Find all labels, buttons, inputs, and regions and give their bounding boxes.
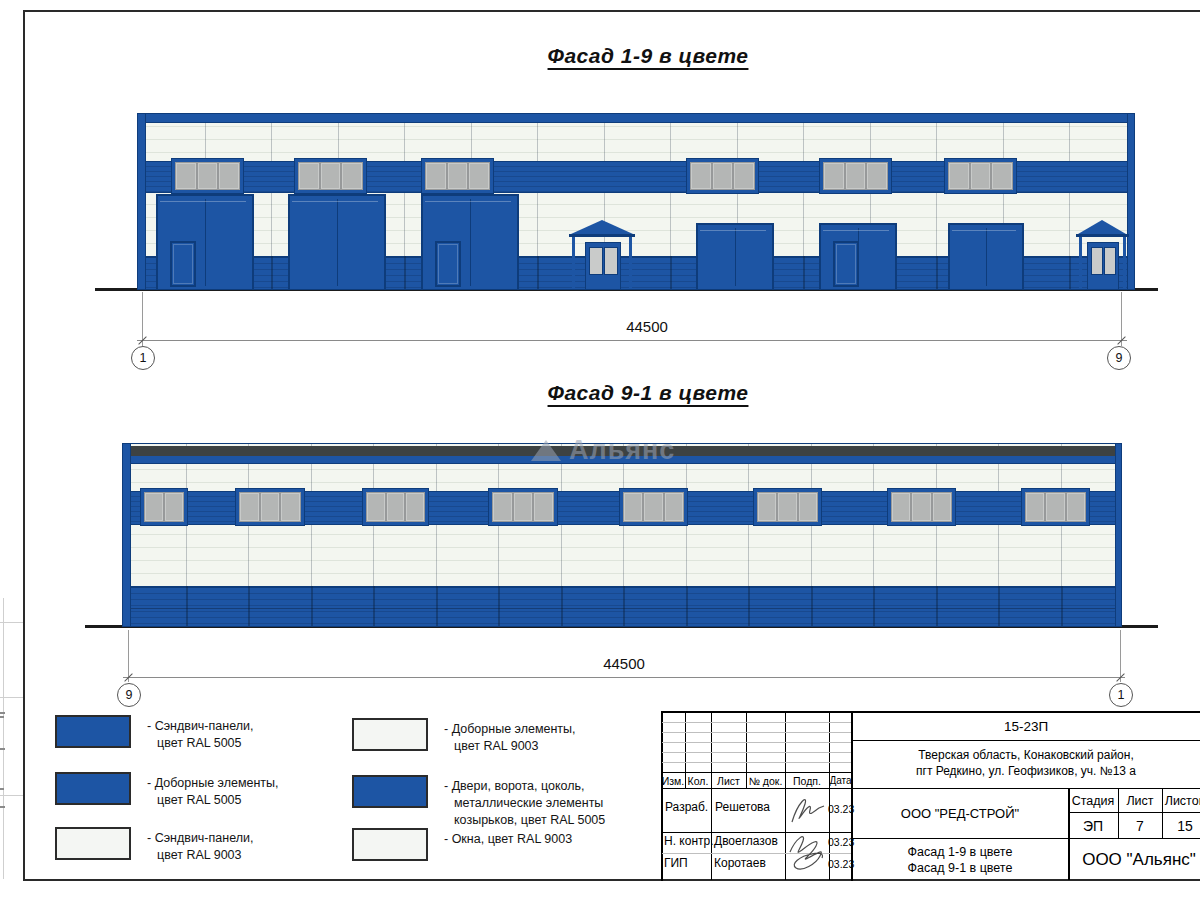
staff-name: Коротаев (714, 856, 766, 870)
base-joint (936, 586, 938, 627)
window (235, 488, 305, 526)
facade-9-1 (122, 443, 1122, 627)
base-joint (436, 586, 438, 627)
window-pane (342, 163, 362, 189)
base-joint (373, 586, 375, 627)
window-pane (1067, 493, 1085, 521)
titleblock-line (829, 712, 830, 880)
window-pane (665, 493, 683, 521)
window-pane (644, 493, 662, 521)
margin-stamp-mark (0, 806, 5, 808)
window-pane (912, 493, 930, 521)
entrance-door (1087, 242, 1119, 290)
canopy-post-right (1123, 237, 1126, 290)
gate (948, 223, 1024, 290)
wicket-door-edge (173, 244, 193, 284)
window-pane (176, 163, 196, 189)
staff-name: Двоеглазов (714, 834, 778, 848)
window-pane (240, 493, 259, 521)
legend-label: - Доборные элементы,цвет RAL 9003 (444, 718, 576, 755)
window-pane (448, 163, 468, 189)
corner-column-left (138, 114, 146, 290)
titleblock-thin-line (662, 762, 851, 763)
base-joint (248, 586, 250, 627)
legend-label: - Доборные элементы,цвет RAL 5005 (147, 772, 279, 809)
staff-role: Разраб. (665, 800, 708, 814)
window-pane (534, 493, 553, 521)
staff-date: 03.23 (828, 836, 853, 848)
window-pane (824, 163, 844, 189)
window-pane (406, 493, 424, 521)
dimension-line (137, 340, 1127, 341)
legend-label: - Сэндвич-панели,цвет RAL 9003 (147, 827, 253, 864)
window-pane (367, 493, 385, 521)
window-pane (799, 493, 817, 521)
gate-rail (823, 230, 889, 231)
window (140, 488, 188, 526)
watermark: Альянс (531, 435, 675, 466)
gate-split (735, 228, 736, 286)
canopy-icon (571, 220, 633, 234)
gate-split (337, 199, 338, 286)
gate-rail (292, 201, 378, 202)
extension-line (1120, 630, 1121, 682)
gate (421, 194, 519, 290)
gate-split (205, 199, 206, 286)
window-pane (469, 163, 489, 189)
titleblock-thin-line (662, 742, 851, 743)
col-kol: Кол. (685, 775, 711, 787)
legend-swatch-blue (352, 775, 428, 808)
plinth-joint (1069, 256, 1071, 290)
canopy-post-right (629, 237, 632, 290)
window-glass (823, 162, 888, 190)
legend-swatch-white (55, 827, 131, 860)
plinth-joint (404, 256, 406, 290)
plinth-joint (537, 256, 539, 290)
window (887, 488, 956, 526)
project-address-line2: пгт Редкино, ул. Геофизиков, уч. №13 а (852, 764, 1200, 778)
window-glass (239, 492, 301, 522)
window-glass (891, 492, 952, 522)
door-glass (1104, 247, 1116, 275)
window-pane (971, 163, 991, 189)
margin-stamp-line (0, 795, 23, 796)
dimension-value: 44500 (582, 318, 712, 335)
plinth-joint (670, 256, 672, 290)
drawing-sheet: Фасад 1-9 в цвете Фасад 9-1 в цвете Алья… (0, 0, 1200, 900)
plinth-joint (803, 256, 805, 290)
margin-stamp-line (0, 622, 23, 623)
window-glass (425, 162, 490, 190)
legend-label: - Окна, цвет RAL 9003 (444, 828, 572, 848)
canopy-post-left (1079, 237, 1082, 290)
window (294, 158, 367, 194)
titleblock-line (852, 838, 1200, 839)
window-glass (1025, 492, 1086, 522)
gate-rail (952, 230, 1016, 231)
window-pane (778, 493, 796, 521)
titleblock-line (662, 788, 851, 789)
window-pane (198, 163, 218, 189)
legend-swatch-blue (55, 715, 131, 748)
margin-stamp-mark (0, 748, 5, 750)
gate-split (986, 228, 987, 286)
col-doc: № док. (746, 775, 785, 787)
titleblock-thin-line (662, 752, 851, 753)
window (171, 158, 244, 194)
window (488, 488, 558, 526)
window (686, 158, 759, 194)
window-pane (387, 493, 405, 521)
base-joint (873, 586, 875, 627)
window (421, 158, 494, 194)
door-glass (589, 247, 603, 275)
col-podp: Подп. (785, 775, 829, 787)
contractor-name: ООО "РЕД-СТРОЙ" (852, 806, 1068, 821)
legend-column-1: - Сэндвич-панели,цвет RAL 5005- Доборные… (55, 705, 355, 880)
col-izm: Изм. (661, 775, 685, 787)
axis-bubble-9: 9 (1107, 346, 1131, 370)
window (819, 158, 892, 194)
window-pane (624, 493, 642, 521)
plinth-joint (271, 256, 273, 290)
staff-role: Н. контр. (664, 834, 714, 848)
watermark-text: Альянс (569, 435, 675, 466)
stage-value: ЭП (1068, 818, 1118, 834)
legend-swatch-white (352, 828, 428, 861)
base-joint (811, 586, 813, 627)
window-pane (321, 163, 341, 189)
window-pane (949, 163, 969, 189)
stage-label: Стадия (1068, 794, 1118, 808)
window-pane (426, 163, 446, 189)
margin-stamp-line (3, 598, 4, 879)
corner-column-right (1115, 444, 1122, 627)
door-glass (1091, 247, 1103, 275)
entrance-door (585, 242, 621, 290)
legend-label: - Сэндвич-панели,цвет RAL 5005 (147, 715, 253, 752)
legend-swatch-blue (55, 772, 131, 805)
canopy-post-left (572, 237, 575, 290)
sheets-value: 15 (1162, 818, 1200, 834)
watermark-logo-icon (531, 440, 561, 461)
legend-item: - Двери, ворота, цоколь,металлические эл… (352, 775, 662, 829)
col-list: Лист (711, 775, 746, 787)
legend-item: - Окна, цвет RAL 9003 (352, 828, 662, 861)
legend-item: - Сэндвич-панели,цвет RAL 9003 (55, 827, 355, 864)
titleblock-border-top (662, 711, 1200, 713)
legend-item: - Доборные элементы,цвет RAL 5005 (55, 772, 355, 809)
project-address-line1: Тверская область, Конаковский район, (852, 748, 1200, 762)
sheet-value: 7 (1118, 818, 1162, 834)
dimension-line (123, 677, 1125, 678)
staff-role: ГИП (664, 856, 688, 870)
corner-column-left (123, 444, 131, 627)
base-joint (1061, 586, 1063, 627)
titleblock-border-left (661, 711, 663, 881)
staff-name: Решетова (715, 800, 770, 814)
window-pane (867, 163, 887, 189)
corner-column-right (1127, 114, 1135, 290)
window-pane (892, 493, 910, 521)
window (362, 488, 429, 526)
window-pane (165, 493, 183, 521)
window (1021, 488, 1090, 526)
facade-top-title: Фасад 1-9 в цвете (348, 44, 948, 68)
margin-stamp-mark (0, 788, 4, 790)
window-pane (145, 493, 163, 521)
frame-top (23, 10, 1200, 12)
window-glass (298, 162, 363, 190)
window-pane (514, 493, 533, 521)
window-glass (690, 162, 755, 190)
window-pane (219, 163, 239, 189)
gate (696, 223, 774, 290)
canopy-bar (1076, 234, 1129, 237)
window-pane (846, 163, 866, 189)
gate-rail (425, 201, 511, 202)
facade-bottom-title: Фасад 9-1 в цвете (348, 381, 948, 405)
window-pane (691, 163, 711, 189)
wicket-door-edge (836, 244, 856, 284)
window-glass (757, 492, 818, 522)
base-joint (748, 586, 750, 627)
window-pane (493, 493, 512, 521)
window-pane (299, 163, 319, 189)
plinth-joint (936, 256, 938, 290)
legend-column-2: - Доборные элементы,цвет RAL 9003- Двери… (352, 705, 662, 880)
window-pane (992, 163, 1012, 189)
legend-item: - Доборные элементы,цвет RAL 9003 (352, 718, 662, 755)
canopy-icon (1078, 220, 1126, 234)
sheet-label: Лист (1118, 794, 1162, 808)
staff-date: 03.23 (828, 803, 853, 815)
window-pane (713, 163, 733, 189)
window-glass (144, 492, 184, 522)
window-pane (261, 493, 280, 521)
wicket-door-edge (438, 244, 458, 284)
wicket-door (170, 241, 196, 287)
legend-item: - Сэндвич-панели,цвет RAL 5005 (55, 715, 355, 752)
facade-1-9 (137, 113, 1135, 290)
gate (156, 194, 254, 290)
gate-split (470, 199, 471, 286)
window-pane (281, 493, 300, 521)
titleblock-thin-line (662, 722, 851, 723)
organization-name: ООО "Альянс" (1068, 850, 1200, 870)
axis-bubble-9: 9 (117, 683, 141, 707)
sheet-subject-line2: Фасад 9-1 в цвете (852, 861, 1068, 875)
window-pane (1046, 493, 1064, 521)
wicket-door (435, 241, 461, 287)
window-glass (948, 162, 1013, 190)
canopy-bar (569, 234, 635, 237)
axis-bubble-1: 1 (1109, 683, 1133, 707)
base-joint (311, 586, 313, 627)
window-pane (758, 493, 776, 521)
signature (786, 790, 829, 878)
window (753, 488, 822, 526)
legend-label: - Двери, ворота, цоколь,металлические эл… (444, 775, 605, 829)
margin-stamp-mark (0, 716, 4, 718)
margin-stamp-line (0, 697, 23, 698)
window-glass (492, 492, 554, 522)
base-joint (186, 586, 188, 627)
window (619, 488, 688, 526)
legend-swatch-white (352, 718, 428, 751)
col-data: Дата (828, 775, 853, 786)
base-joint (561, 586, 563, 627)
base-joint (998, 586, 1000, 627)
window-glass (366, 492, 425, 522)
extension-line (128, 630, 129, 682)
parapet-band (138, 114, 1135, 123)
window-pane (933, 493, 951, 521)
dimension-value: 44500 (559, 655, 689, 672)
titleblock-line (852, 740, 1200, 741)
base-joint (498, 586, 500, 627)
titleblock-line (662, 772, 851, 773)
window-pane (734, 163, 754, 189)
titleblock-thin-line (662, 732, 851, 733)
titleblock-line (1068, 812, 1200, 813)
doc-number: 15-23П (852, 719, 1200, 734)
base-joint (623, 586, 625, 627)
wicket-door (833, 241, 859, 287)
gate (288, 194, 386, 290)
gate (819, 223, 897, 290)
window-glass (623, 492, 684, 522)
staff-date: 03.23 (828, 858, 853, 870)
door-glass (604, 247, 618, 275)
titleblock-line (711, 712, 712, 880)
frame-left (23, 10, 25, 881)
window (944, 158, 1017, 194)
sheets-label: Листов (1162, 794, 1200, 808)
axis-bubble-1: 1 (131, 346, 155, 370)
gate-rail (160, 201, 246, 202)
base-joint (686, 586, 688, 627)
window-glass (175, 162, 240, 190)
gate-rail (700, 230, 766, 231)
window-pane (1026, 493, 1044, 521)
margin-stamp-mark (0, 712, 5, 714)
sheet-subject-line1: Фасад 1-9 в цвете (852, 845, 1068, 859)
titleblock-line (852, 788, 1200, 789)
